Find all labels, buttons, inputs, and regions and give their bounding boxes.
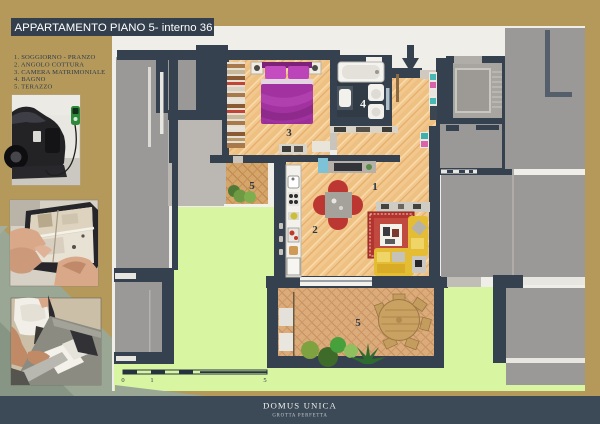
svg-text:GROTTA PERFETTA: GROTTA PERFETTA [272,414,327,419]
svg-text:2. ANGOLO COTTURA: 2. ANGOLO COTTURA [14,61,84,68]
svg-text:4: 4 [360,97,366,111]
svg-text:1: 1 [372,181,378,193]
svg-text:3: 3 [286,127,292,139]
svg-text:1: 1 [150,377,153,384]
svg-text:0: 0 [121,377,124,384]
svg-text:4. BAGNO: 4. BAGNO [14,76,46,83]
svg-text:5. TERAZZO: 5. TERAZZO [14,84,53,91]
svg-text:5: 5 [263,377,266,384]
svg-text:3. CAMERA MATRIMONIALE: 3. CAMERA MATRIMONIALE [14,69,105,76]
svg-text:5: 5 [355,317,361,329]
svg-text:DOMUS UNICA: DOMUS UNICA [263,401,337,411]
svg-text:1. SOGGIORNO - PRANZO: 1. SOGGIORNO - PRANZO [14,54,96,61]
svg-text:2: 2 [312,224,318,236]
svg-text:APPARTAMENTO PIANO 5- interno: APPARTAMENTO PIANO 5- interno 36 [15,22,213,34]
svg-text:5: 5 [249,180,255,192]
